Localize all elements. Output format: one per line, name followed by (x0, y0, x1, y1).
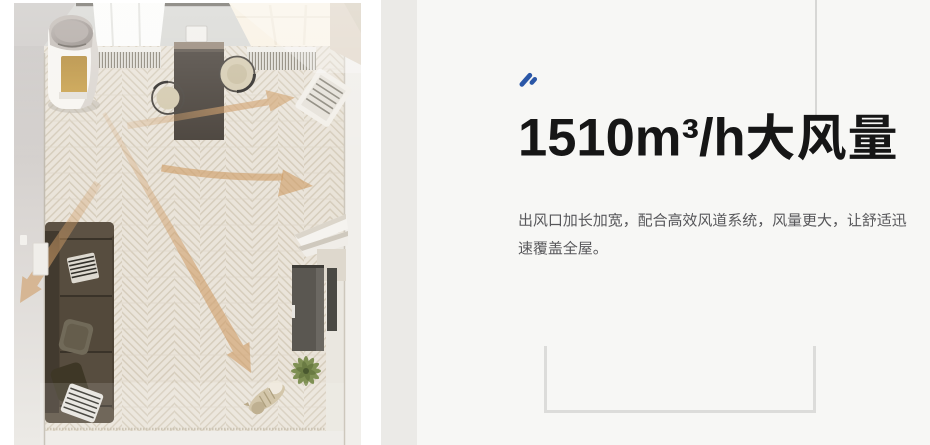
svg-text:1510m³/h: 1510m³/h (518, 109, 746, 168)
